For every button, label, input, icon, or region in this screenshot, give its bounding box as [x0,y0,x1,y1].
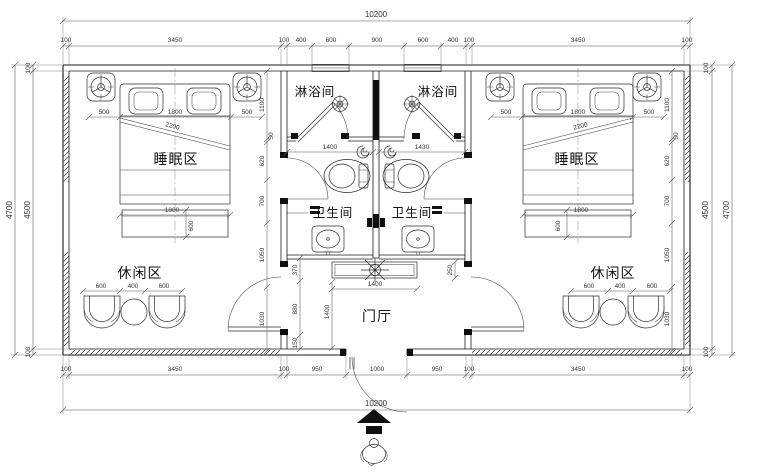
dim-top-seg: 900 [372,37,383,44]
dim-top-seg: 600 [326,37,337,44]
ceiling-lamp-icon [486,73,514,101]
dim-bath-left-width: 1400 [323,144,338,151]
ceiling-lamp-icon [87,73,115,101]
room-label-shower-right: 淋浴间 [418,85,459,99]
dim-bed-diag-right: 2200 [573,121,589,132]
ceiling-lamp-icon [633,73,661,101]
bedroom-left-door [228,277,281,331]
sink-icon [402,226,434,255]
dim-chain-right: 1050 [664,247,671,262]
dim-chain-right: 1100 [664,98,671,112]
dim-right-chain: 100 [703,346,710,357]
ceiling-fan-icon [361,258,389,282]
dim-bottom-seg: 1000 [370,366,385,373]
dim-top-seg: 100 [61,37,72,44]
dim-bed-diag-left: 2200 [164,121,180,132]
dim-foyer-height: 1400 [324,304,331,319]
ceiling-lamp-icon [233,73,261,101]
leisure-left-set [84,296,185,328]
dim-top-seg: 100 [464,37,475,44]
dim-top-seg: 3450 [168,37,183,44]
dim-counter-depth: 250 [447,264,454,275]
dim-chain-right: 50 [673,132,680,140]
dim-leisure-right: 600 [647,283,658,290]
dim-left-chain: 100 [25,62,32,73]
round-table-icon [121,299,147,325]
dim-left-chain: 100 [25,346,32,357]
dim-bottom-seg: 100 [464,366,475,373]
dim-chain-left: 700 [259,195,266,206]
dim-leisure-right: 600 [584,283,595,290]
dim-bed-right: 500 [501,109,512,116]
room-label-wc-left: 卫生间 [313,206,354,220]
bottom-wall-hatch [70,350,280,355]
entry-direction-arrow [357,409,391,434]
dim-underbed-right: 1800 [574,207,589,214]
dim-top-seg: 400 [296,37,307,44]
dim-leisure-right: 400 [615,283,626,290]
room-label-foyer: 门厅 [362,308,392,324]
dim-underbed-right: 600 [555,220,562,231]
left-wall-hatch [64,252,69,346]
sink-icon [312,226,344,255]
dim-left-outer: 4700 [5,201,14,219]
person-figure [361,439,388,466]
dim-right-chain: 4500 [701,201,710,219]
armchair-icon [563,296,599,328]
dim-leisure-left: 600 [159,283,170,290]
dim-chain-right: 620 [664,155,671,166]
dim-foyer-chain: 880 [292,303,299,314]
left-wall-hatch [64,76,69,182]
room-label-leisure-left: 休闲区 [118,265,163,281]
dim-foyer-chain: 150 [292,337,299,348]
dim-leisure-left: 600 [96,283,107,290]
right-wall-hatch [685,252,690,346]
bedroom-right-door [471,277,524,331]
dim-top-seg: 600 [418,37,429,44]
room-label-sleep-right: 睡眠区 [555,151,600,167]
dim-bottom-seg: 950 [312,366,323,373]
dim-bottom-seg: 100 [682,366,693,373]
bathroom-left-door [287,158,328,199]
dim-bottom-seg: 950 [432,366,443,373]
foyer-counter [332,258,417,282]
dim-bottom-seg: 3450 [168,366,183,373]
toilets [324,160,429,193]
right-wall-hatch [685,76,690,182]
dim-top-seg: 400 [448,37,459,44]
dim-chain-left: 1050 [259,247,266,262]
dim-bed-left: 1800 [168,109,183,116]
dim-chain-left: 50 [268,132,275,140]
dim-bed-left: 500 [99,109,110,116]
dim-underbed-left: 600 [188,220,195,231]
dim-bottom-seg: 100 [279,366,290,373]
dim-right-chain: 100 [703,62,710,73]
armchair-icon [628,296,664,328]
dim-bed-right: 1800 [571,109,586,116]
dim-bed-left: 500 [242,109,253,116]
room-label-shower-left: 淋浴间 [295,85,336,99]
bathroom-right-door [424,158,465,199]
dim-leisure-left: 400 [128,283,139,290]
room-label-wc-right: 卫生间 [392,206,433,220]
dim-chain-right: 700 [664,195,671,206]
entrance-marker [357,409,391,465]
dim-bottom-overall: 10200 [365,399,388,408]
dim-chain-left: 1030 [259,311,266,326]
dim-chain-left: 1100 [259,98,266,112]
leisure-right-set [563,296,664,328]
dim-top-seg: 100 [682,37,693,44]
round-table-icon [600,299,626,325]
dim-chain-right: 1030 [664,311,671,326]
dim-bath-right-width: 1430 [415,144,430,151]
dim-left-chain: 4500 [23,201,32,219]
dim-bed-right: 500 [644,109,655,116]
dim-underbed-left: 1800 [165,207,180,214]
dim-chain-left: 620 [259,155,266,166]
dim-counter-width: 1400 [368,281,383,288]
floor-plan: 10200 100 3450 100 400 600 900 600 400 1… [0,0,760,473]
room-label-leisure-right: 休闲区 [591,265,636,281]
dim-top-seg: 3450 [571,37,586,44]
floor-plan-canvas: 10200 100 3450 100 400 600 900 600 400 1… [0,0,760,473]
room-label-sleep-left: 睡眠区 [154,151,199,167]
bottom-wall-hatch [472,350,682,355]
dim-top-overall: 10200 [365,10,388,19]
dim-top-seg: 100 [279,37,290,44]
dim-bottom-seg: 3450 [571,366,586,373]
dim-right-outer: 4700 [722,201,731,219]
armchair-icon [149,296,185,328]
armchair-icon [84,296,120,328]
toilet-icon [383,160,429,193]
dim-bottom-seg: 100 [61,366,72,373]
toilet-icon [324,160,370,193]
dim-foyer-chain: 370 [292,264,299,275]
